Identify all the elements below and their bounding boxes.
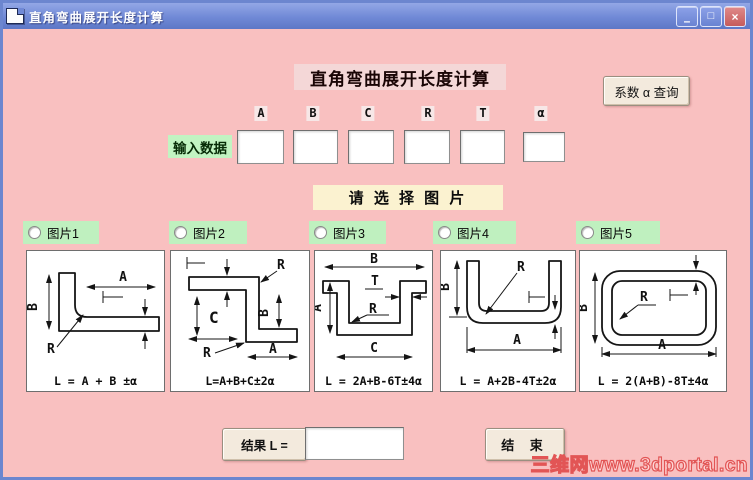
- radio-label: 图片5: [600, 223, 632, 242]
- picture-frame-2: C R R B A L=A+B+C±2α: [170, 250, 310, 392]
- field-label-t: T: [476, 106, 489, 121]
- field-label-alpha: α: [534, 106, 547, 121]
- radio-label: 图片1: [47, 223, 79, 242]
- input-a[interactable]: [237, 130, 284, 164]
- dim-label-a: A: [513, 333, 521, 348]
- formula-label: L = 2A+B-6T±4α: [315, 374, 432, 388]
- maximize-button[interactable]: □: [700, 6, 722, 27]
- formula-label: L=A+B+C±2α: [171, 374, 309, 388]
- radio-option-picture1[interactable]: 图片1: [23, 221, 99, 244]
- radio-icon[interactable]: [438, 226, 451, 239]
- bend-diagram-4-u-shape: B R A: [441, 251, 575, 367]
- formula-label: L = 2(A+B)-8T±4α: [580, 374, 726, 388]
- radio-icon[interactable]: [174, 226, 187, 239]
- dim-label-r: R: [640, 290, 648, 305]
- input-c[interactable]: [348, 130, 394, 164]
- dim-label-c: C: [370, 341, 378, 356]
- picture-frame-1: A B R L = A + B ±α: [26, 250, 165, 392]
- select-picture-prompt: 请 选 择 图 片: [313, 185, 503, 210]
- dim-label-t: T: [371, 274, 379, 289]
- dim-label-a: A: [119, 270, 127, 285]
- input-alpha[interactable]: [523, 132, 565, 162]
- bend-diagram-5-closed-box: B R A: [580, 251, 726, 367]
- coefficient-query-button[interactable]: 系数 α 查询: [603, 76, 690, 106]
- form-icon: [6, 8, 24, 24]
- radio-label: 图片3: [333, 223, 365, 242]
- picture-frame-5: B R A L = 2(A+B)-8T±4α: [579, 250, 727, 392]
- dim-label-b: B: [27, 303, 41, 311]
- radio-label: 图片2: [193, 223, 225, 242]
- radio-option-picture5[interactable]: 图片5: [576, 221, 660, 244]
- page-title: 直角弯曲展开长度计算: [294, 64, 506, 90]
- dim-label-r: R: [277, 258, 285, 273]
- dim-label-a: A: [315, 304, 325, 312]
- bend-diagram-1-l-shape: A B R: [27, 251, 164, 367]
- titlebar: 直角弯曲展开长度计算 – □ ×: [3, 3, 750, 29]
- radio-icon[interactable]: [28, 226, 41, 239]
- bend-diagram-3-channel: B T R A C: [315, 251, 432, 367]
- input-b[interactable]: [293, 130, 338, 164]
- dim-label-b: B: [370, 252, 378, 267]
- window-title: 直角弯曲展开长度计算: [29, 7, 164, 26]
- result-output-field[interactable]: [305, 427, 404, 460]
- watermark-text: 三维网www.3dportal.cn: [531, 450, 748, 477]
- app-window: 直角弯曲展开长度计算 – □ × 直角弯曲展开长度计算 系数 α 查询 A B …: [0, 0, 753, 480]
- bend-diagram-2-z-shape: C R R B A: [171, 251, 309, 367]
- minimize-button[interactable]: –: [676, 6, 698, 27]
- dim-label-b: B: [580, 304, 591, 312]
- picture-frame-4: B R A L = A+2B-4T±2α: [440, 250, 576, 392]
- field-label-b: B: [306, 106, 319, 121]
- picture-frame-3: B T R A C L = 2A+B-6T±4α: [314, 250, 433, 392]
- field-label-r: R: [421, 106, 434, 121]
- field-label-a: A: [254, 106, 267, 121]
- dim-label-c: C: [209, 308, 219, 327]
- minimize-icon: –: [684, 14, 691, 28]
- dim-label-r: R: [47, 342, 55, 357]
- radio-label: 图片4: [457, 223, 489, 242]
- dim-label-a: A: [269, 342, 277, 357]
- close-button[interactable]: ×: [724, 6, 746, 27]
- radio-icon[interactable]: [314, 226, 327, 239]
- formula-label: L = A + B ±α: [27, 374, 164, 388]
- input-r[interactable]: [404, 130, 450, 164]
- dim-label-b: B: [257, 309, 272, 317]
- radio-option-picture3[interactable]: 图片3: [309, 221, 386, 244]
- field-label-c: C: [361, 106, 374, 121]
- radio-icon[interactable]: [581, 226, 594, 239]
- radio-option-picture2[interactable]: 图片2: [169, 221, 247, 244]
- close-icon: ×: [731, 10, 738, 24]
- formula-label: L = A+2B-4T±2α: [441, 374, 575, 388]
- radio-option-picture4[interactable]: 图片4: [433, 221, 516, 244]
- maximize-icon: □: [708, 10, 715, 22]
- form-client-area: 直角弯曲展开长度计算 系数 α 查询 A B C R T α 输入数据 请 选 …: [3, 29, 750, 477]
- input-t[interactable]: [460, 130, 505, 164]
- input-data-label: 输入数据: [168, 135, 232, 158]
- dim-label-b: B: [441, 283, 453, 291]
- dim-label-a: A: [658, 338, 666, 353]
- result-label: 结果 L =: [222, 428, 307, 461]
- dim-label-r: R: [517, 260, 525, 275]
- window-controls: – □ ×: [676, 6, 746, 27]
- dim-label-r: R: [203, 346, 211, 361]
